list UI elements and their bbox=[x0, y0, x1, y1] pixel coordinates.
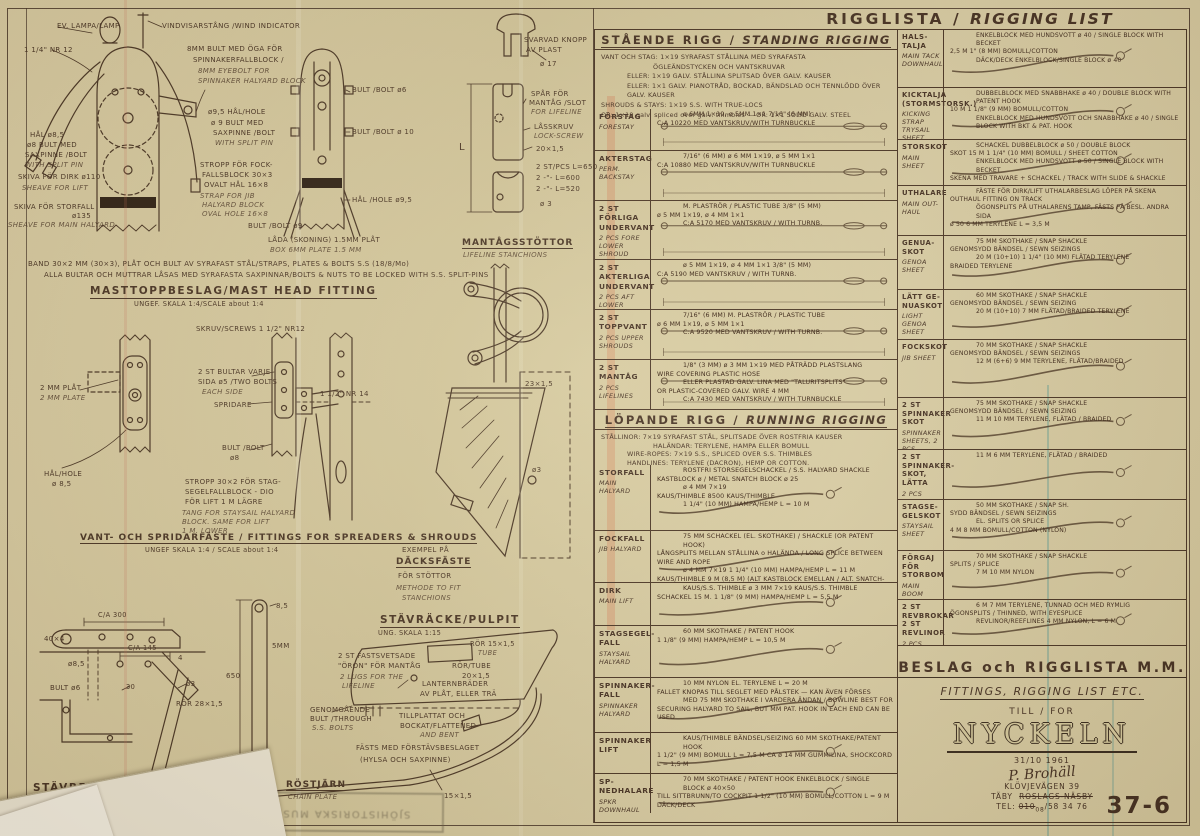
label-front-hole95: HÅL /HOLE ø9,5 bbox=[352, 196, 412, 204]
note-line: 11 M 10 MM TERYLENE, FLÄTAD / BRAIDED bbox=[950, 416, 1182, 424]
note-line: 1 1/8" (9 MM) HAMPA/HEMP L = 10,5 M bbox=[657, 637, 893, 646]
label-dia3: ø 3 bbox=[540, 200, 552, 208]
row-name-en: LIGHT GENOA SHEET bbox=[902, 312, 941, 336]
row-label: 2 ST SPINNAKER-SKOT, LÄTTA2 PCS SPKR SHE… bbox=[898, 450, 944, 499]
label-through-3: S.S. BOLTS bbox=[312, 724, 354, 732]
row-fockfall: FOCKFALLJIB HALYARD75 MM SCHACKEL (EL. S… bbox=[595, 530, 897, 582]
row-label: UTHALAREMAIN OUT-HAUL bbox=[898, 186, 944, 235]
note-line: 7/16" (6 MM) ø 6 MM 1×19, ø 5 MM 1×1 bbox=[657, 153, 893, 162]
note-line: SYDD BÄNDSEL / SEWN SEIZINGS bbox=[950, 510, 1182, 518]
row-name-en: 2 PCS SPKR SHEETS, LIGHT bbox=[902, 490, 941, 500]
note-line: 70 MM SKOTHAKE / SNAP SHACKLE bbox=[950, 553, 1182, 561]
row-notes: 60 MM SKOTHAKE / SNAP SHACKLEGENOMSYDD B… bbox=[944, 290, 1186, 339]
row-notes: KAUS/S.S. THIMBLE ø 3 MM 7×19 KAUS/S.S. … bbox=[651, 583, 897, 625]
note-line: KAUS/THIMBLE 9 M (8,5 M) (ALT KASTBLOCK … bbox=[657, 576, 893, 583]
label-twobolts-2: SIDA ø5 /TWO BOLTS bbox=[198, 378, 277, 386]
note-line: C:A 10220 MED VANTSKRUV/WITH TURNBUCKLE bbox=[657, 120, 893, 129]
note-line: TILL SITTBRUNN/TO COCKPIT 1 1/2" (10 MM)… bbox=[657, 793, 893, 810]
row-2-st-spinnaker-skot: 2 ST SPINNAKER SKOTSPINNAKER SHEETS, 2 P… bbox=[898, 397, 1186, 449]
row-label: FOCKSKOTJIB SHEET bbox=[898, 340, 944, 397]
row-name-en: MAIN BOOM FOREGUY bbox=[902, 582, 941, 599]
note-line: 20 M (10+10) 7 MM FLÄTAD/BRAIDED TERYLEN… bbox=[950, 308, 1182, 316]
row-notes: ENKELBLOCK MED HUNDSVOTT ø 40 / SINGLE B… bbox=[944, 30, 1186, 87]
note-line: 1/8" (3 MM) ø 3 MM 1×19 MED PÅTRÄDD PLAS… bbox=[657, 362, 893, 371]
row-name-sv: AKTERSTAG bbox=[599, 154, 648, 163]
row-name-sv: KICKTALJA (STORMSTORSK.) bbox=[902, 91, 941, 108]
row-name-sv: UTHALARE bbox=[902, 189, 941, 198]
note-line: ø 4 MM 7×19 1 1/4" (10 MM) HAMPA/HEMP L … bbox=[657, 567, 893, 576]
label-spr-hole-dia: ø 8,5 bbox=[52, 480, 71, 488]
row-notes: 70 MM SKOTHAKE / SNAP SHACKLESPLITS / SP… bbox=[944, 551, 1186, 599]
note-line: C:A 9520 MED VANTSKRUV / WITH TURNB. bbox=[657, 329, 893, 338]
row-label: 2 ST REVBROKAR 2 ST REVLINOR2 PCS REEF P… bbox=[898, 600, 944, 645]
label-deckfit-5: STANCHIONS bbox=[402, 594, 451, 602]
note-line: C:A 7430 MED VANTSKRUV / WITH TURNBUCKLE bbox=[657, 396, 893, 405]
intro-line: ÖGLEÄNDSTYCKEN OCH VANTSKRUVAR bbox=[601, 63, 891, 73]
row-name-sv: STORSKOT bbox=[902, 143, 941, 152]
note-line: 12 M (6+6) 9 MM TERYLENE, FLÄTAD/BRAIDED bbox=[950, 358, 1182, 366]
note-line: 60 MM SKOTHAKE / PATENT HOOK bbox=[657, 628, 893, 637]
row-name-sv: FOCKFALL bbox=[599, 534, 648, 543]
right-rows: HALS-TALJAMAIN TACK DOWNHAULENKELBLOCK M… bbox=[898, 30, 1186, 645]
label-deckfit-2: DÄCKSFÄSTE bbox=[396, 557, 471, 568]
row-name-sv: SP-NEDHALARE bbox=[599, 777, 648, 796]
row-name-en: STAYSAIL SHEET bbox=[902, 522, 941, 538]
label-masthead-caption: MASTTOPPBESLAG/MAST HEAD FITTING bbox=[90, 285, 377, 299]
label-material-note-2: ALLA BULTAR OCH MUTTRAR LÅSAS MED SYRAFA… bbox=[44, 271, 489, 279]
row-lätt-ge-nuaskot: LÄTT GE-NUASKOTLIGHT GENOA SHEET60 MM SK… bbox=[898, 289, 1186, 339]
note-line: C:A 5170 MED VANTSKRUV / WITH TURNB. bbox=[657, 220, 893, 229]
row-notes: 60 MM SKOTHAKE / PATENT HOOK1 1/8" (9 MM… bbox=[651, 626, 897, 677]
label-masthead-scale: UNGEF. SKALA 1:4/SCALE about 1:4 bbox=[134, 301, 264, 309]
running-intro: STÅLLINOR: 7×19 SYRAFAST STÅL, SPLITSADE… bbox=[595, 430, 897, 465]
row-akterstag: AKTERSTAGPERM. BACKSTAY7/16" (6 MM) ø 6 … bbox=[595, 150, 897, 200]
note-line: ø 6 MM 1×19, ø 5 MM 1×1 bbox=[657, 321, 893, 330]
title-en: RIGGING LIST bbox=[970, 10, 1114, 30]
row-name-sv: FÖRGAJ FÖR STORBOM bbox=[902, 554, 941, 580]
note-line: 10 M 1 1/8" (9 MM) BOMULL/COTTON bbox=[950, 106, 1182, 114]
label-lamp: EV. LAMPA/LAMP bbox=[57, 22, 120, 30]
note-line: M. PLASTRÖR / PLASTIC TUBE 3/8" (5 MM) bbox=[657, 203, 893, 212]
row-notes: 75 MM SCHACKEL (EL. SKOTHAKE) / SHACKLE … bbox=[651, 531, 897, 582]
label-cp-85: 8,5 bbox=[276, 602, 288, 610]
label-material-note-1: BAND 30×2 MM (30×3), PLÅT OCH BULT AV SY… bbox=[28, 260, 409, 268]
label-pulpit-scale: UNG. SKALA 1:15 bbox=[378, 630, 441, 638]
row-notes: ROSTFRI STORSEGELSCHACKEL / S.S. HALYARD… bbox=[651, 465, 897, 530]
label-tang-4: TANG FOR STAYSAIL HALYARD bbox=[182, 509, 295, 517]
running-rigging-header: LÖPANDE RIGG / RUNNING RIGGING bbox=[595, 409, 897, 430]
note-line: SCHACKEL 15 M. 1 1/8" (9 MM) HAMPA/HEMP … bbox=[657, 594, 893, 603]
label-plate-en: 2 MM PLATE bbox=[40, 394, 86, 402]
row-2-st-akterliga-undervant: 2 ST AKTERLIGA UNDERVANT2 PCS AFT LOWER … bbox=[595, 259, 897, 309]
label-knob-dia: ø 17 bbox=[540, 60, 557, 68]
row-label: SPINNAKER LIFT bbox=[595, 733, 651, 773]
note-line: EL. SPLITS OR SPLICE bbox=[950, 518, 1182, 526]
note-line: ø 4 MM 7×19 bbox=[657, 484, 893, 493]
row-notes: 75 MM SKOTHAKE / SNAP SHACKLEGENOMSYDD B… bbox=[944, 398, 1186, 449]
label-stem-ca300: C/A 300 bbox=[98, 612, 127, 620]
label-flat-1: TILLPLATTAT OCH bbox=[399, 712, 465, 720]
drawing-number: 37-6 bbox=[1106, 793, 1172, 819]
row-name-sv: LÄTT GE-NUASKOT bbox=[902, 293, 941, 310]
label-dim-L: L bbox=[459, 142, 465, 154]
row-name-en: MAIN OUT-HAUL bbox=[902, 200, 941, 216]
label-lockscrew-1: LÅSSKRUV bbox=[534, 123, 574, 131]
label-twobolts-3: EACH SIDE bbox=[202, 388, 243, 396]
row-förstag: FÖRSTAGFORESTAYø 6MM 1×19, ø 5MM 1×1 7/1… bbox=[595, 109, 897, 150]
row-name-sv: 2 ST REVBROKAR 2 ST REVLINOR bbox=[902, 603, 941, 638]
label-650: 2 ST/PCS L=650 bbox=[536, 163, 598, 171]
label-tang-5: BLOCK. SAME FOR LIFT bbox=[182, 518, 270, 526]
row-stagsegel-fall: STAGSEGEL-FALLSTAYSAIL HALYARD60 MM SKOT… bbox=[595, 625, 897, 677]
note-line: FALLET KNOPAS TILL SEGLET MED PÅLSTEK — … bbox=[657, 689, 893, 698]
row-label: FOCKFALLJIB HALYARD bbox=[595, 531, 651, 582]
intro-line: HALÄNDAR: TERYLENE, HAMPA ELLER BOMULL bbox=[601, 442, 891, 451]
note-line: ø 5 MM 1×19, ø 4 MM 1×1 bbox=[657, 212, 893, 221]
note-line: OR PLASTIC-COVERED GALV. WIRE 4 MM bbox=[657, 388, 893, 397]
note-line: 20 M (10+10) 1 1/4" (10 MM) FLÄTAD TERYL… bbox=[950, 254, 1182, 262]
note-line: ø 50 6 MM TERYLENE L = 3,5 M bbox=[950, 221, 1182, 229]
row-name-sv: HALS-TALJA bbox=[902, 33, 941, 50]
label-stem-bolt6: BULT ø6 bbox=[50, 684, 81, 692]
row-dirk: DIRKMAIN LIFTKAUS/S.S. THIMBLE ø 3 MM 7×… bbox=[595, 582, 897, 625]
standing-intro: VANT OCH STAG: 1×19 SYRAFAST STÅLLINA ME… bbox=[595, 50, 897, 109]
label-tube15-2: TUBE bbox=[478, 650, 497, 658]
row-label: 2 ST TOPPVANT2 PCS UPPER SHROUDS bbox=[595, 310, 651, 359]
label-spreader-scale: UNGEF SKALA 1:4 / SCALE about 1:4 bbox=[145, 547, 278, 555]
note-line: ÖGONSPLITS / THINNED, WITH EYESPLICE bbox=[950, 610, 1182, 618]
label-bolt9-bottom: BULT /BOLT ø9 bbox=[248, 222, 303, 230]
label-stem-85: ø8,5 bbox=[68, 660, 85, 668]
row-2-st-toppvant: 2 ST TOPPVANT2 PCS UPPER SHROUDS7/16" (6… bbox=[595, 309, 897, 359]
row-notes: 50 MM SKOTHAKE / SNAP SH.SYDD BÄNDSEL / … bbox=[944, 500, 1186, 550]
note-line: KAUS/THIMBLE 8500 KAUS/THIMBLE bbox=[657, 493, 893, 502]
row-label: 2 ST AKTERLIGA UNDERVANT2 PCS AFT LOWER … bbox=[595, 260, 651, 309]
intro-line: STÅLLINOR: 7×19 SYRAFAST STÅL, SPLITSADE… bbox=[601, 433, 891, 442]
note-line: 1 1/4" (10 MM) HAMPA/HEMP L = 10 M bbox=[657, 501, 893, 510]
row-name-en: MAIN HALYARD bbox=[599, 479, 648, 495]
label-nr12: 1 1/4" NR 12 bbox=[24, 46, 73, 54]
row-name-en: GENOA SHEET bbox=[902, 258, 941, 274]
row-förgaj-för-storbom: FÖRGAJ FÖR STORBOMMAIN BOOM FOREGUY70 MM… bbox=[898, 550, 1186, 599]
row-2-st-revbrokar-2-st-revlinor: 2 ST REVBROKAR 2 ST REVLINOR2 PCS REEF P… bbox=[898, 599, 1186, 645]
row-notes: 7/16" (6 MM) ø 6 MM 1×19, ø 5 MM 1×1C:A … bbox=[651, 151, 897, 200]
row-name-en: KICKING STRAP TRYSAIL SHEET bbox=[902, 110, 941, 139]
row-name-en: MAIN LIFT bbox=[599, 597, 648, 605]
row-name-en: JIB HALYARD bbox=[599, 545, 648, 553]
label-twobolts-1: 2 ST BULTAR VARJE bbox=[198, 368, 271, 376]
title-block-line1: BESLAG och RIGGLISTA M.M. bbox=[898, 660, 1186, 676]
label-fasts-2: (HYLSA OCH SAXPINNE) bbox=[360, 756, 451, 764]
row-notes: 11 M 6 MM TERYLENE, FLÄTAD / BRAIDED bbox=[944, 450, 1186, 499]
note-line: ø 5 MM 1×19, ø 4 MM 1×1 3/8" (5 MM) bbox=[657, 262, 893, 271]
row-label: STAGSE-GELSKOTSTAYSAIL SHEET bbox=[898, 500, 944, 550]
row-label: HALS-TALJAMAIN TACK DOWNHAUL bbox=[898, 30, 944, 87]
label-sheave-main-1: SKIVA FÖR STORFALL bbox=[14, 203, 94, 211]
row-spinnaker-lift: SPINNAKER LIFTKAUS/THIMBLE BÄNDSEL/SEIZI… bbox=[595, 732, 897, 773]
label-fasts-1: FÄSTS MED FÖRSTÄVSBESLAGET bbox=[356, 744, 479, 752]
row-name-sv: FOCKSKOT bbox=[902, 343, 941, 352]
label-deckfit-1: EXEMPEL PÅ bbox=[402, 546, 449, 554]
row-name-en: SPINNAKER HALYARD bbox=[599, 702, 648, 718]
row-uthalare: UTHALAREMAIN OUT-HAULFÄSTE FÖR DIRK/LIFT… bbox=[898, 185, 1186, 235]
label-bolt9-2: SAXPINNE /BOLT bbox=[213, 129, 275, 137]
row-storfall: STORFALLMAIN HALYARDROSTFRI STORSEGELSCH… bbox=[595, 465, 897, 530]
label-slot-2: MANTÅG /SLOT bbox=[529, 99, 586, 107]
sheet-border-inner bbox=[26, 8, 27, 826]
label-bolt8-1: ø8 BULT MED bbox=[27, 141, 77, 149]
label-sheave-lift-2: SHEAVE FOR LIFT bbox=[22, 184, 88, 192]
row-notes: 70 MM SKOTHAKE / SNAP SHACKLEGENOMSYDD B… bbox=[944, 340, 1186, 397]
note-line: ROSTFRI STORSEGELSCHACKEL / S.S. HALYARD… bbox=[657, 467, 893, 476]
note-line: ENKELBLOCK MED HUNDSVOTT OCH SNABBHAKE ø… bbox=[950, 115, 1182, 131]
row-label: STORFALLMAIN HALYARD bbox=[595, 465, 651, 530]
note-line: KAUS/THIMBLE BÄNDSEL/SEIZING 60 MM SKOTH… bbox=[657, 735, 893, 752]
row-label: SP-NEDHALARESPKR DOWNHAUL bbox=[595, 774, 651, 813]
label-lockscrew-2: LOCK-SCREW bbox=[534, 132, 584, 140]
label-tube20-1: RÖR/TUBE bbox=[452, 662, 491, 670]
note-line: ENKELBLOCK MED HUNDSVOTT ø 50 / SINGLE B… bbox=[950, 158, 1182, 174]
row-storskot: STORSKOTMAIN SHEETSCHACKEL DUBBELBLOCK ø… bbox=[898, 139, 1186, 185]
label-spr-hole: HÅL/HOLE bbox=[44, 470, 82, 478]
row-label: GENUA-SKOTGENOA SHEET bbox=[898, 236, 944, 289]
row-genua-skot: GENUA-SKOTGENOA SHEET75 MM SKOTHAKE / SN… bbox=[898, 235, 1186, 289]
note-line: 75 MM SKOTHAKE / SNAP SHACKLE bbox=[950, 400, 1182, 408]
label-pulpit-caption: STÄVRÄCKE/PULPIT bbox=[380, 614, 520, 628]
label-through-2: BULT /THROUGH bbox=[310, 715, 372, 723]
label-tang-3: FÖR LIFT 1 M LÄGRE bbox=[185, 498, 263, 506]
row-notes: 75 MM SKOTHAKE / SNAP SHACKLEGENOMSYDD B… bbox=[944, 236, 1186, 289]
note-line: LÅNGSPLITS MELLAN STÅLLINA o HALÄNDA / L… bbox=[657, 550, 893, 567]
label-lantern-1: LANTERNBRÄDER bbox=[422, 680, 488, 688]
note-line: REVLINOR/REEFLINES 4 MM NYLON, L = 6 M bbox=[950, 618, 1182, 626]
row-label: LÄTT GE-NUASKOTLIGHT GENOA SHEET bbox=[898, 290, 944, 339]
label-lugs-4: LIFELINE bbox=[342, 682, 375, 690]
note-line: 6 M 7 MM TERYLENE, TUNNAD OCH MED RYMLIG bbox=[950, 602, 1182, 610]
row-name-en: JIB SHEET bbox=[902, 354, 941, 362]
label-box-2: BOX 6MM PLATE 1.5 MM bbox=[270, 246, 362, 254]
label-strap-2: FALLSBLOCK 30×3 bbox=[202, 171, 273, 179]
note-line: 4 M 8 MM BOMULL/COTTON (NYLON) bbox=[950, 527, 1182, 535]
label-plate-sv: 2 MM PLÅT bbox=[40, 384, 81, 392]
row-name-sv: SPINNAKER LIFT bbox=[599, 736, 648, 755]
label-bolt8-2: SAXPINNE /BOLT bbox=[25, 151, 87, 159]
row-hals-talja: HALS-TALJAMAIN TACK DOWNHAULENKELBLOCK M… bbox=[898, 30, 1186, 87]
title-block-line2: FITTINGS, RIGGING LIST ETC. bbox=[898, 685, 1186, 698]
label-sheave-main-3: SHEAVE FOR MAIN HALYARD bbox=[8, 221, 115, 229]
intro-line: WIRE-ROPES: 7×19 S.S., SPLICED OVER S.S.… bbox=[601, 450, 891, 459]
label-knob-1: SVARVAD KNOPP bbox=[524, 36, 587, 44]
label-stem-30: 30 bbox=[126, 684, 135, 692]
note-line: 11 M 6 MM TERYLENE, FLÄTAD / BRAIDED bbox=[950, 452, 1182, 460]
note-line: KASTBLOCK ø / METAL SNATCH BLOCK ø 25 bbox=[657, 476, 893, 485]
row-name-sv: 2 ST AKTERLIGA UNDERVANT bbox=[599, 263, 648, 291]
title-sv: RIGGLISTA bbox=[826, 10, 944, 30]
row-name-sv: FÖRSTAG bbox=[599, 112, 648, 121]
row-name-sv: 2 ST FÖRLIGA UNDERVANT bbox=[599, 204, 648, 232]
row-2-st-mantåg: 2 ST MANTÅG2 PCS LIFELINES1/8" (3 MM) ø … bbox=[595, 359, 897, 409]
note-line: 75 MM SCHACKEL (EL. SKOTHAKE) / SHACKLE … bbox=[657, 533, 893, 550]
row-name-sv: 2 ST TOPPVANT bbox=[599, 313, 648, 332]
row-name-en: 2 PCS FORE LOWER SHROUD bbox=[599, 234, 648, 258]
label-tang-1: STROPP 30×2 FÖR STAG- bbox=[185, 478, 281, 486]
label-stem-ca145: C/A 145 bbox=[128, 645, 157, 653]
note-line: 10 MM NYLON EL. TERYLENE L = 20 M bbox=[657, 680, 893, 689]
label-bolt9-1: ø 9 BULT MED bbox=[211, 119, 264, 127]
intro-line: ELLER: 1×19 GALV. STÅLLINA SPLITSAD ÖVER… bbox=[601, 72, 891, 82]
label-hole-95: ø9,5 HÅL/HOLE bbox=[208, 108, 266, 116]
note-line: ENKELBLOCK MED HUNDSVOTT ø 40 / SINGLE B… bbox=[950, 32, 1182, 48]
label-spridare: SPRIDARE bbox=[214, 401, 252, 409]
label-lugs-2: "ÖRON" FÖR MANTÅG bbox=[338, 662, 421, 670]
label-bolt8-3: WITH SPLIT PIN bbox=[25, 161, 83, 169]
label-deck-plate: 23×1,5 bbox=[525, 380, 553, 388]
label-lugs-1: 2 ST FASTSVETSADE bbox=[338, 652, 416, 660]
row-name-sv: 2 ST MANTÅG bbox=[599, 363, 648, 382]
label-stem-dia3: ø3 bbox=[186, 680, 195, 688]
row-2-st-förliga-undervant: 2 ST FÖRLIGA UNDERVANT2 PCS FORE LOWER S… bbox=[595, 200, 897, 259]
row-name-sv: DIRK bbox=[599, 586, 648, 595]
note-line: SCHACKEL DUBBELBLOCK ø 50 / DOUBLE BLOCK bbox=[950, 142, 1182, 150]
label-stanchions-en: LIFELINE STANCHIONS bbox=[463, 251, 547, 259]
intro-line: VANT OCH STAG: 1×19 SYRAFAST STÅLLINA ME… bbox=[601, 53, 891, 63]
rigging-table-right: HALS-TALJAMAIN TACK DOWNHAULENKELBLOCK M… bbox=[897, 29, 1187, 823]
label-tube15-1: RÖR 15×1,5 bbox=[470, 641, 515, 649]
row-stagse-gelskot: STAGSE-GELSKOTSTAYSAIL SHEET50 MM SKOTHA… bbox=[898, 499, 1186, 550]
label-tube-dim: 20×1,5 bbox=[536, 145, 564, 153]
row-notes: 7/16" (6 MM) M. PLASTRÖR / PLASTIC TUBEø… bbox=[651, 310, 897, 359]
row-name-sv: STORFALL bbox=[599, 468, 648, 477]
note-line: DÄCK/DECK ENKELBLOCK/SINGLE BLOCK ø 40 bbox=[950, 57, 1182, 65]
label-eyebolt-2: SPINNAKERFALLBLOCK / bbox=[193, 56, 284, 64]
label-spreader-caption: VANT- OCH SPRIDARFÄSTE / FITTINGS FOR SP… bbox=[80, 533, 477, 544]
row-label: AKTERSTAGPERM. BACKSTAY bbox=[595, 151, 651, 200]
note-line: MED 75 MM SKOTHAKE I VARDERA ÄNDAN / BOW… bbox=[657, 697, 893, 706]
note-line: 50 MM SKOTHAKE / SNAP SH. bbox=[950, 502, 1182, 510]
note-line: C:A 10880 MED VANTSKRUV/WITH TURNBUCKLE bbox=[657, 162, 893, 171]
row-notes: FÄSTE FÖR DIRK/LIFT UTHALARBESLAG LÖPER … bbox=[944, 186, 1186, 235]
label-tube20-2: 20×1,5 bbox=[462, 672, 490, 680]
label-flat-2: BOCKAT/FLATTENED bbox=[400, 722, 476, 730]
row-name-en: MAIN TACK DOWNHAUL bbox=[902, 52, 941, 68]
row-label: STAGSEGEL-FALLSTAYSAIL HALYARD bbox=[595, 626, 651, 677]
row-2-st-spinnaker-skot-lätta: 2 ST SPINNAKER-SKOT, LÄTTA2 PCS SPKR SHE… bbox=[898, 449, 1186, 499]
note-line: DUBBELBLOCK MED SNABBHAKE ø 40 / DOUBLE … bbox=[950, 90, 1182, 106]
label-stem-4: 4 bbox=[178, 654, 183, 662]
row-notes: 6 M 7 MM TERYLENE, TUNNAD OCH MED RYMLIG… bbox=[944, 600, 1186, 645]
note-line: 70 MM SKOTHAKE / PATENT HOOK ENKELBLOCK … bbox=[657, 776, 893, 793]
label-strap-4: STRAP FOR JIB bbox=[200, 192, 255, 200]
label-slot-1: SPÅR FÖR bbox=[531, 90, 569, 98]
label-hole-85: HÅL ø8,5 bbox=[30, 131, 64, 139]
note-line: ELLER PLASTAD GALV. LINA MED "TALURITSPL… bbox=[657, 379, 893, 388]
label-strap-1: STROPP FÖR FOCK- bbox=[200, 161, 273, 169]
label-sheave-main-2: ø135 bbox=[72, 212, 91, 220]
boat-name: NYCKELN bbox=[947, 719, 1137, 753]
label-600: 2 -"- L=600 bbox=[536, 174, 580, 182]
note-line: C:A 5190 MED VANTSKRUV / WITH TURNB. bbox=[657, 271, 893, 280]
row-label: 2 ST SPINNAKER SKOTSPINNAKER SHEETS, 2 P… bbox=[898, 398, 944, 449]
row-label: 2 ST MANTÅG2 PCS LIFELINES bbox=[595, 360, 651, 409]
label-strap-3: OVALT HÅL 16×8 bbox=[204, 181, 268, 189]
row-label: STORSKOTMAIN SHEET bbox=[898, 140, 944, 185]
row-kicktalja-stormstorsk-: KICKTALJA (STORMSTORSK.)KICKING STRAP TR… bbox=[898, 87, 1186, 139]
page-title: RIGGLISTA / RIGGING LIST bbox=[755, 10, 1185, 28]
note-line: SECURING HALYARD TO SAIL, BUT MM PAT. HO… bbox=[657, 706, 893, 723]
note-line: BRAIDED TERYLENE bbox=[950, 263, 1182, 271]
row-name-sv: 2 ST SPINNAKER SKOT bbox=[902, 401, 941, 427]
row-notes: KAUS/THIMBLE BÄNDSEL/SEIZING 60 MM SKOTH… bbox=[651, 733, 897, 773]
label-stem-tube: RÖR 28×1,5 bbox=[176, 700, 223, 708]
label-strap-6: OVAL HOLE 16×8 bbox=[202, 210, 268, 218]
row-fockskot: FOCKSKOTJIB SHEET70 MM SKOTHAKE / SNAP S… bbox=[898, 339, 1186, 397]
row-name-en: PERM. BACKSTAY bbox=[599, 165, 648, 181]
row-label: SPINNAKER-FALLSPINNAKER HALYARD bbox=[595, 678, 651, 732]
label-eyebolt-1: 8MM BULT MED ÖGA FÖR bbox=[187, 45, 283, 53]
label-deckfit-4: METHODE TO FIT bbox=[396, 584, 461, 592]
running-rows: STORFALLMAIN HALYARDROSTFRI STORSEGELSCH… bbox=[595, 465, 897, 813]
label-spr-bolt-dia: ø8 bbox=[230, 454, 239, 462]
note-line: ÖGONSPLITS PÅ UTHALARENS TAMP, FÄSTS PÅ … bbox=[950, 204, 1182, 220]
note-line: SPLITS / SPLICE bbox=[950, 561, 1182, 569]
note-line: FÄSTE FÖR DIRK/LIFT UTHALARBESLAG LÖPER … bbox=[950, 188, 1182, 196]
label-520: 2 -"- L=520 bbox=[536, 185, 580, 193]
label-slot-3: FOR LIFELINE bbox=[531, 108, 582, 116]
label-deckfit-3: FÖR STÖTTOR bbox=[398, 572, 452, 580]
row-notes: M. PLASTRÖR / PLASTIC TUBE 3/8" (5 MM)ø … bbox=[651, 201, 897, 259]
row-label: 2 ST FÖRLIGA UNDERVANT2 PCS FORE LOWER S… bbox=[595, 201, 651, 259]
label-nr14: 1 1/2" NR 14 bbox=[320, 390, 369, 398]
label-tube15x15: 15×1,5 bbox=[444, 792, 472, 800]
label-stanchions-sv: MANTÅGSSTÖTTOR bbox=[462, 238, 573, 249]
note-line: SKOT 15 M 1 1/4" (10 MM) BOMULL / SHEET … bbox=[950, 150, 1182, 158]
row-label: KICKTALJA (STORMSTORSK.)KICKING STRAP TR… bbox=[898, 88, 944, 139]
label-chainplate-sv: RÖSTJÄRN bbox=[286, 780, 346, 791]
note-line: 70 MM SKOTHAKE / SNAP SHACKLE bbox=[950, 342, 1182, 350]
label-cp-650: 650 bbox=[226, 672, 240, 680]
label-box-1: LÅDA (SKONING) 1.5MM PLÅT bbox=[268, 236, 380, 244]
row-notes: 1/8" (3 MM) ø 3 MM 1×19 MED PÅTRÄDD PLAS… bbox=[651, 360, 897, 409]
label-eyebolt-4: SPINNAKER HALYARD BLOCK bbox=[198, 77, 306, 85]
label-wind-indicator: VINDVISARSTÅNG /WIND INDICATOR bbox=[162, 22, 300, 30]
row-name-en: FORESTAY bbox=[599, 123, 648, 131]
row-name-en: MAIN SHEET bbox=[902, 154, 941, 170]
label-deck-dia3: ø3 bbox=[532, 466, 541, 474]
row-name-sv: GENUA-SKOT bbox=[902, 239, 941, 256]
standing-rows: FÖRSTAGFORESTAYø 6MM 1×19, ø 5MM 1×1 7/1… bbox=[595, 109, 897, 409]
row-label: FÖRGAJ FÖR STORBOMMAIN BOOM FOREGUY bbox=[898, 551, 944, 599]
note-line: 1 1/2" (9 MM) BOMULL L = 7,5 M CA ø 14 M… bbox=[657, 752, 893, 769]
label-spr-bolt: BULT /BOLT bbox=[222, 444, 265, 452]
label-cp-5mm: 5MM bbox=[272, 642, 290, 650]
row-name-en: STAYSAIL HALYARD bbox=[599, 650, 648, 666]
row-label: FÖRSTAGFORESTAY bbox=[595, 109, 651, 150]
label-lugs-3: 2 LUGS FOR THE bbox=[340, 673, 403, 681]
note-line: KAUS/S.S. THIMBLE ø 3 MM 7×19 KAUS/S.S. … bbox=[657, 585, 893, 594]
note-line: 75 MM SKOTHAKE / SNAP SHACKLE bbox=[950, 238, 1182, 246]
row-name-sv: 2 ST SPINNAKER-SKOT, LÄTTA bbox=[902, 453, 941, 488]
row-notes: DUBBELBLOCK MED SNABBHAKE ø 40 / DOUBLE … bbox=[944, 88, 1186, 139]
standing-rigging-header: STÅENDE RIGG / STANDING RIGGING bbox=[595, 30, 897, 50]
label-bolt9-3: WITH SPLIT PIN bbox=[215, 139, 273, 147]
row-sp-nedhalare: SP-NEDHALARESPKR DOWNHAUL70 MM SKOTHAKE … bbox=[595, 773, 897, 813]
note-line: ø 6MM 1×19, ø 5MM 1×1 7/16" (6 MM) bbox=[657, 111, 893, 120]
label-tang-2: SEGELFALLBLOCK - DIO bbox=[185, 488, 274, 496]
rigging-table-left: STÅENDE RIGG / STANDING RIGGING VANT OCH… bbox=[594, 29, 898, 823]
row-name-en: SPKR DOWNHAUL bbox=[599, 798, 648, 814]
row-name-en: SPINNAKER SHEETS, 2 PCS bbox=[902, 429, 941, 449]
row-name-en: 2 PCS UPPER SHROUDS bbox=[599, 334, 648, 350]
